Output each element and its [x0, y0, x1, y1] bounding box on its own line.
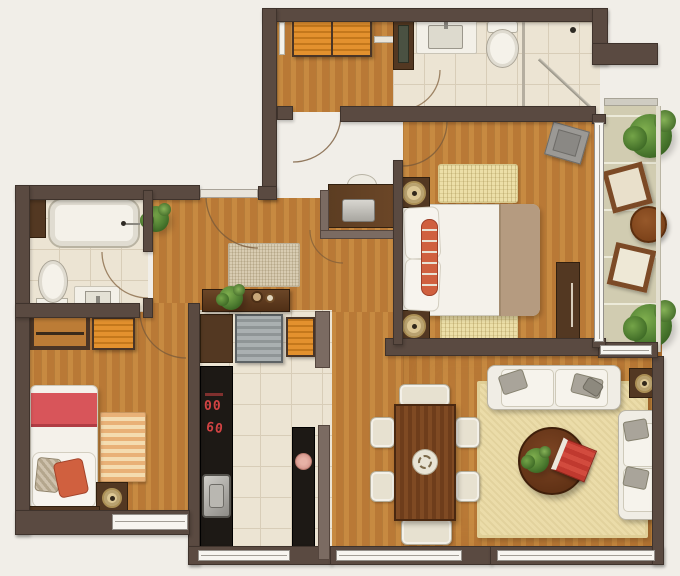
wall-left-exterior: [15, 185, 30, 535]
wall-topright-jut: [592, 43, 658, 65]
wall-entrance-stub: [258, 186, 277, 200]
bedroom2-door-arc: [140, 312, 186, 358]
bedroom2-window: [112, 514, 188, 530]
wall-top: [262, 8, 607, 22]
master-bedroom-door-arc: [403, 122, 447, 166]
wall-left-top: [15, 185, 200, 200]
wall-entry-bottom-stub: [277, 106, 293, 120]
wall-bathleft-right-lower: [143, 298, 153, 318]
wall-entry-left: [262, 8, 277, 200]
dining-window: [336, 550, 462, 561]
living-window: [497, 550, 655, 561]
wall-bathleft-bottom: [15, 303, 140, 318]
balcony-bottom-window: [600, 345, 652, 355]
entrance-threshold: [200, 189, 258, 198]
wall-bathleft-right-upper: [143, 190, 153, 252]
floor-plan: 00 60: [0, 0, 680, 576]
bathroom-left-door-arc: [102, 252, 148, 298]
bathroom-top-door-arc: [400, 70, 440, 110]
wall-living-right: [652, 356, 664, 565]
wall-masterbed-left: [393, 160, 403, 345]
kitchen-window: [198, 550, 290, 561]
wall-bathroom-bottom: [340, 106, 596, 122]
wall-kitchen-stub: [315, 311, 330, 368]
entry-room-door-arc: [293, 114, 341, 162]
door-arcs-layer: [0, 0, 680, 576]
wall-kitchen-right: [318, 425, 330, 560]
desk-partition-h: [320, 230, 395, 239]
master-balcony-window: [594, 122, 604, 342]
entrance-door-arc: [206, 196, 258, 248]
wall-masterbed-bottom: [385, 338, 602, 356]
